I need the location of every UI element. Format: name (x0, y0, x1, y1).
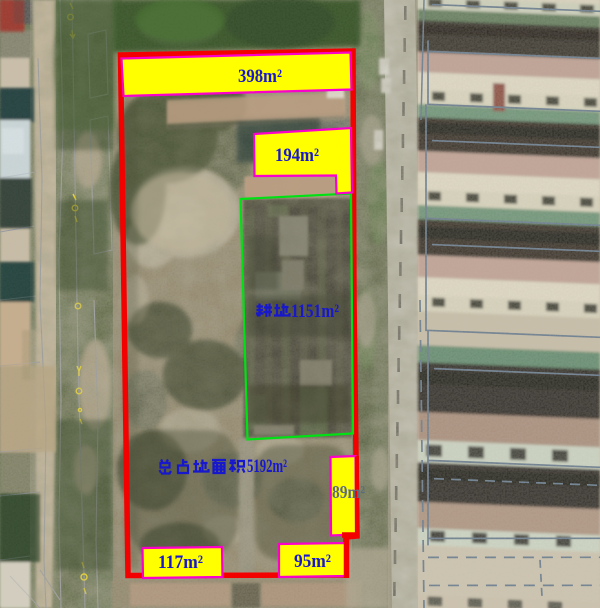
svg-text:194m²: 194m² (275, 146, 319, 166)
svg-text:117m²: 117m² (158, 553, 203, 573)
svg-text:89m²: 89m² (332, 482, 365, 502)
svg-text:95m²: 95m² (294, 552, 331, 572)
svg-text:1151m²: 1151m² (291, 302, 339, 322)
svg-text:5192m²: 5192m² (247, 457, 287, 477)
svg-text:398m²: 398m² (238, 67, 282, 87)
